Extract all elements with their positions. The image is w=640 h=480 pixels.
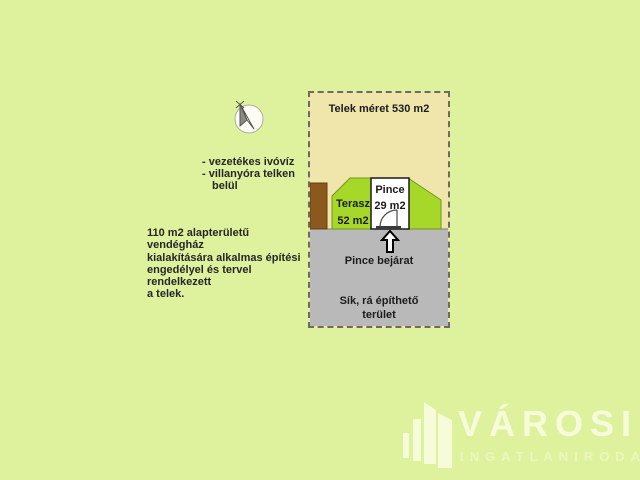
cellar-area: 29 m2 — [371, 198, 409, 214]
buildings-icon — [400, 398, 456, 472]
utilities-note-line: - villanyóra telken — [202, 168, 322, 180]
buildable-area-line: Sík, rá építhető — [310, 294, 448, 308]
north-arrow-icon — [232, 99, 266, 137]
logo-title: VÁROSI — [458, 403, 638, 445]
cellar-entrance-label: Pince bejárat — [310, 255, 448, 267]
utilities-note-line: belül — [202, 180, 322, 192]
cellar-name: Pince — [371, 182, 409, 198]
utilities-note-line: - vezetékes ivóvíz — [202, 156, 322, 168]
utilities-note: - vezetékes ivóvíz - villanyóra telken b… — [202, 156, 322, 192]
cellar-label: Pince 29 m2 — [371, 182, 409, 214]
permit-note-line: a telek. — [147, 288, 305, 300]
buildable-area-label: Sík, rá építhető terület — [310, 294, 448, 322]
permit-note-line: engedélyel és tervel rendelkezett — [147, 264, 305, 289]
permit-note-line: kialakítására alkalmas építési — [147, 252, 305, 264]
terrace-area: 52 m2 — [322, 213, 384, 230]
lot-size-label: Telek méret 530 m2 — [310, 103, 448, 115]
buildable-area-line: terület — [310, 308, 448, 322]
permit-note-line: 110 m2 alapterületű vendégház — [147, 227, 305, 252]
flyer-canvas: - vezetékes ivóvíz - villanyóra telken b… — [0, 0, 640, 480]
site-plan: Telek méret 530 m2 Terasz 52 m2 Pince 29… — [308, 91, 450, 328]
logo-subtitle: INGATLANIRODA — [460, 449, 640, 464]
permit-note: 110 m2 alapterületű vendégház kialakítás… — [147, 227, 305, 301]
